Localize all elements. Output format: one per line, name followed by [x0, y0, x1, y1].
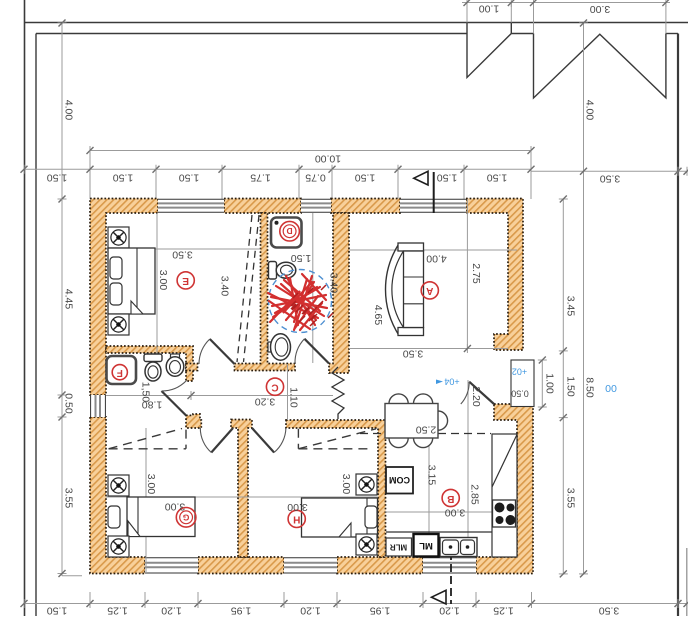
svg-text:1.95: 1.95 [370, 605, 391, 617]
svg-text:3.20: 3.20 [255, 396, 276, 408]
svg-text:1.50: 1.50 [437, 172, 458, 184]
svg-text:1.95: 1.95 [231, 605, 252, 617]
svg-text:E: E [182, 275, 189, 286]
svg-text:3.50: 3.50 [599, 605, 620, 617]
svg-text:3.50: 3.50 [600, 173, 621, 185]
svg-text:1.50: 1.50 [291, 252, 312, 264]
svg-text:3.00: 3.00 [157, 270, 169, 291]
svg-text:0.50: 0.50 [511, 389, 529, 399]
svg-text:3.50: 3.50 [172, 249, 193, 261]
svg-text:G: G [182, 512, 189, 522]
svg-text:1.50: 1.50 [47, 605, 68, 617]
svg-text:1.50: 1.50 [355, 172, 376, 184]
svg-text:0.75: 0.75 [305, 172, 326, 184]
svg-text:1.00: 1.00 [544, 373, 556, 394]
svg-text:3.00: 3.00 [590, 3, 611, 15]
svg-text:A: A [426, 285, 433, 296]
svg-text:1,50: 1,50 [140, 382, 152, 403]
svg-text:3.40: 3.40 [219, 276, 231, 297]
svg-text:3.00: 3.00 [165, 501, 186, 513]
svg-text:10.00: 10.00 [315, 153, 341, 165]
svg-text:F: F [117, 367, 123, 378]
svg-text:1.50: 1.50 [487, 172, 508, 184]
svg-text:3.00: 3.00 [145, 474, 157, 495]
svg-text:2.50: 2.50 [416, 424, 437, 436]
svg-text:MLR: MLR [390, 543, 408, 552]
svg-text:3.55: 3.55 [565, 488, 577, 509]
svg-text:4.65: 4.65 [372, 305, 384, 326]
svg-text:+02: +02 [512, 367, 527, 377]
svg-text:COM: COM [389, 475, 410, 485]
svg-text:4.45: 4.45 [63, 289, 75, 310]
svg-text:1.10: 1.10 [288, 387, 300, 408]
svg-text:4.00: 4.00 [426, 253, 447, 265]
svg-text:3.15: 3.15 [426, 465, 438, 486]
svg-text:4.00: 4.00 [584, 100, 596, 121]
svg-text:1.25: 1.25 [493, 605, 514, 617]
svg-text:8.50: 8.50 [584, 377, 596, 398]
svg-text:C: C [271, 382, 278, 393]
svg-text:3.55: 3.55 [63, 488, 75, 509]
svg-text:ML: ML [419, 540, 433, 551]
svg-text:1.50: 1.50 [179, 172, 200, 184]
svg-text:2.85: 2.85 [469, 484, 481, 505]
svg-text:3.00: 3.00 [340, 474, 352, 495]
svg-text:00: 00 [605, 382, 617, 394]
svg-text:D: D [287, 226, 293, 236]
svg-text:2.20: 2.20 [470, 386, 482, 407]
svg-text:+04: +04 [444, 377, 459, 387]
svg-text:1.50: 1.50 [565, 376, 577, 397]
svg-text:3.40: 3.40 [328, 273, 340, 294]
svg-text:1.20: 1.20 [439, 605, 460, 617]
svg-text:1.25: 1.25 [107, 605, 128, 617]
svg-text:3.00: 3.00 [445, 507, 466, 519]
svg-text:1.20: 1.20 [300, 605, 321, 617]
svg-text:1.50: 1.50 [113, 172, 134, 184]
svg-text:3.50: 3.50 [403, 348, 424, 360]
svg-text:0.50: 0.50 [63, 393, 75, 414]
svg-text:1.00: 1.00 [479, 3, 500, 15]
svg-text:1.50: 1.50 [47, 172, 68, 184]
svg-text:2.75: 2.75 [470, 263, 482, 284]
svg-text:B: B [447, 493, 454, 504]
svg-text:4.00: 4.00 [63, 100, 75, 121]
svg-text:1.75: 1.75 [250, 172, 271, 184]
svg-text:3.45: 3.45 [565, 296, 577, 317]
svg-text:3.00: 3.00 [287, 501, 308, 513]
svg-text:1.20: 1.20 [161, 605, 182, 617]
svg-text:H: H [293, 514, 300, 525]
